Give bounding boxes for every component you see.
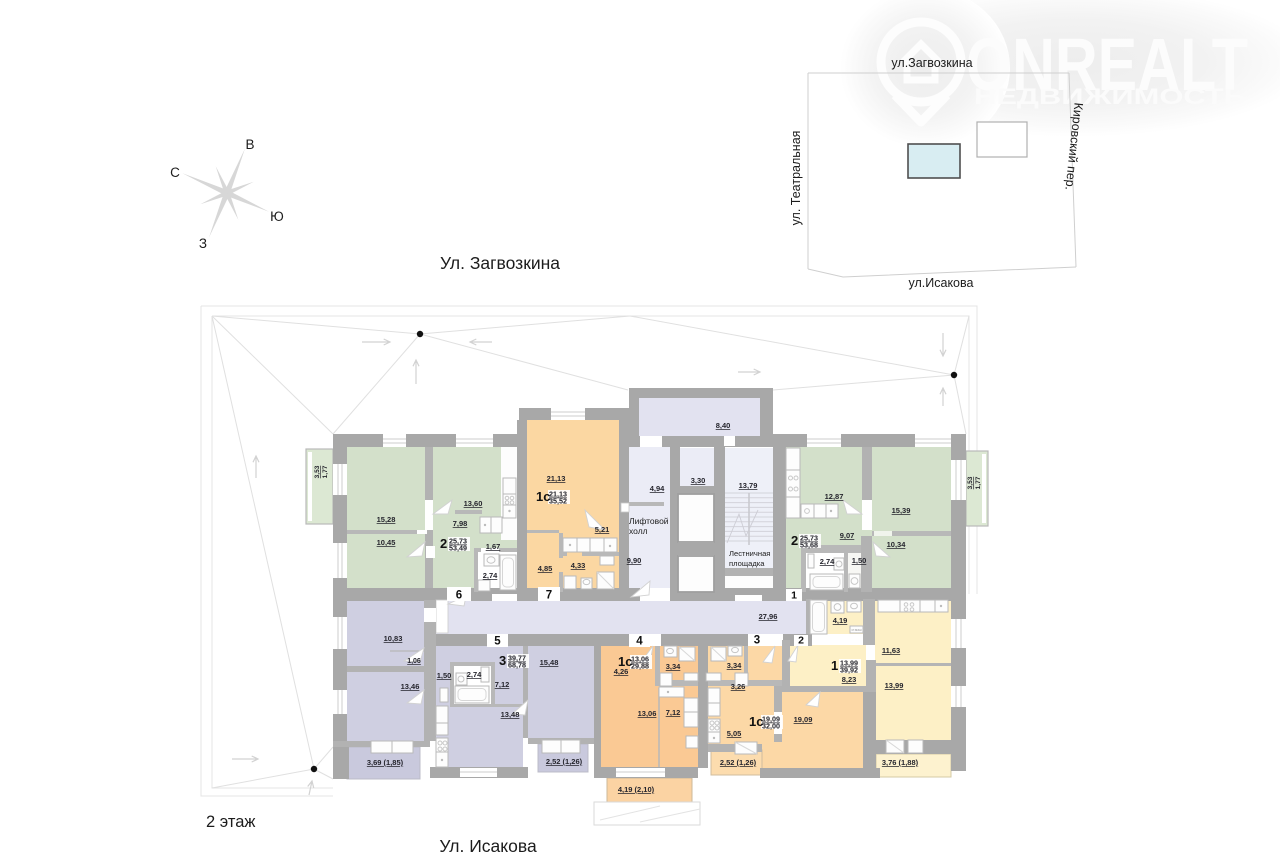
svg-text:3: 3 — [754, 635, 760, 647]
svg-text:5,21: 5,21 — [595, 525, 610, 534]
svg-text:1,06: 1,06 — [407, 658, 421, 665]
svg-text:ст.маш: ст.маш — [851, 628, 862, 632]
svg-text:13,46: 13,46 — [401, 682, 420, 691]
svg-text:7,12: 7,12 — [495, 680, 510, 689]
svg-text:32,00: 32,00 — [762, 722, 780, 731]
svg-text:2: 2 — [440, 536, 447, 551]
svg-text:8,23: 8,23 — [842, 675, 857, 684]
svg-text:ул.Загвозкина: ул.Загвозкина — [891, 56, 972, 70]
svg-text:3,26: 3,26 — [731, 682, 746, 691]
svg-text:35,52: 35,52 — [549, 497, 567, 506]
svg-text:3,53: 3,53 — [967, 476, 974, 489]
svg-text:4,19 (2,10): 4,19 (2,10) — [618, 785, 655, 794]
svg-text:15,39: 15,39 — [892, 506, 911, 515]
svg-text:13,48: 13,48 — [501, 710, 520, 719]
svg-text:3,34: 3,34 — [666, 662, 681, 671]
svg-text:4,33: 4,33 — [571, 561, 586, 570]
svg-text:Ул. Загвозкина: Ул. Загвозкина — [440, 253, 560, 273]
svg-text:4: 4 — [636, 636, 643, 648]
svg-text:2: 2 — [791, 533, 798, 548]
svg-text:13,06: 13,06 — [638, 709, 657, 718]
svg-text:3,30: 3,30 — [691, 476, 706, 485]
svg-text:3,53: 3,53 — [314, 465, 321, 478]
svg-text:2 этаж: 2 этаж — [206, 813, 255, 831]
svg-text:15,48: 15,48 — [540, 658, 559, 667]
svg-text:10,83: 10,83 — [384, 634, 403, 643]
svg-text:19,09: 19,09 — [794, 715, 813, 724]
svg-text:2,74: 2,74 — [467, 670, 482, 679]
svg-text:3,69 (1,85): 3,69 (1,85) — [367, 758, 404, 767]
svg-text:4,94: 4,94 — [650, 484, 665, 493]
svg-text:1,50: 1,50 — [852, 556, 867, 565]
svg-text:1,77: 1,77 — [975, 476, 982, 489]
svg-text:8,40: 8,40 — [716, 421, 731, 430]
svg-text:27,96: 27,96 — [759, 612, 778, 621]
svg-text:21,13: 21,13 — [547, 474, 566, 483]
svg-text:холл: холл — [629, 526, 648, 536]
svg-text:Лестничная: Лестничная — [729, 549, 770, 558]
svg-text:4,19: 4,19 — [833, 616, 848, 625]
svg-text:2,74: 2,74 — [820, 557, 835, 566]
svg-text:9,90: 9,90 — [627, 556, 642, 565]
svg-text:7,98: 7,98 — [453, 519, 468, 528]
svg-text:НЕДВИЖИМОСТЬ: НЕДВИЖИМОСТЬ — [974, 84, 1246, 109]
svg-text:2,74: 2,74 — [483, 571, 498, 580]
svg-text:3: 3 — [499, 653, 506, 668]
svg-text:7: 7 — [546, 590, 552, 602]
svg-text:В: В — [245, 137, 254, 152]
svg-text:2,52 (1,26): 2,52 (1,26) — [720, 758, 757, 767]
svg-text:Ю: Ю — [270, 209, 284, 224]
svg-text:39,92: 39,92 — [840, 666, 858, 675]
svg-text:Ул. Исакова: Ул. Исакова — [439, 836, 537, 854]
svg-text:5: 5 — [494, 636, 501, 648]
svg-text:ул.Исакова: ул.Исакова — [909, 276, 974, 290]
svg-text:1: 1 — [791, 590, 797, 602]
svg-text:53,68: 53,68 — [800, 541, 818, 550]
svg-text:11,63: 11,63 — [882, 646, 900, 655]
svg-text:1,77: 1,77 — [322, 465, 329, 478]
svg-text:6: 6 — [456, 590, 462, 602]
svg-text:4,26: 4,26 — [614, 667, 629, 676]
svg-text:7,12: 7,12 — [666, 708, 681, 717]
svg-text:68,78: 68,78 — [508, 661, 526, 670]
svg-text:1: 1 — [831, 658, 838, 673]
svg-text:4,85: 4,85 — [538, 564, 553, 573]
svg-text:3,34: 3,34 — [727, 661, 742, 670]
svg-text:Лифтовой: Лифтовой — [629, 516, 669, 526]
svg-text:9,07: 9,07 — [840, 531, 855, 540]
svg-text:53,49: 53,49 — [449, 544, 467, 553]
svg-text:З: З — [199, 236, 207, 251]
svg-text:2: 2 — [798, 635, 804, 647]
svg-text:3,76 (1,88): 3,76 (1,88) — [882, 758, 919, 767]
svg-text:2,52 (1,26): 2,52 (1,26) — [546, 757, 583, 766]
svg-text:13,60: 13,60 — [464, 499, 483, 508]
svg-text:ул. Театральная: ул. Театральная — [789, 131, 803, 226]
svg-text:1,50: 1,50 — [437, 671, 452, 680]
svg-text:15,28: 15,28 — [377, 515, 396, 524]
svg-text:5,05: 5,05 — [727, 729, 742, 738]
svg-text:13,99: 13,99 — [885, 681, 904, 690]
svg-text:10,34: 10,34 — [887, 540, 907, 549]
svg-text:10,45: 10,45 — [377, 538, 396, 547]
svg-text:С: С — [170, 165, 180, 180]
svg-text:13,79: 13,79 — [739, 481, 758, 490]
svg-text:12,87: 12,87 — [825, 492, 844, 501]
svg-text:29,88: 29,88 — [631, 662, 649, 671]
svg-text:площадка: площадка — [729, 559, 765, 568]
svg-text:1,67: 1,67 — [486, 542, 501, 551]
